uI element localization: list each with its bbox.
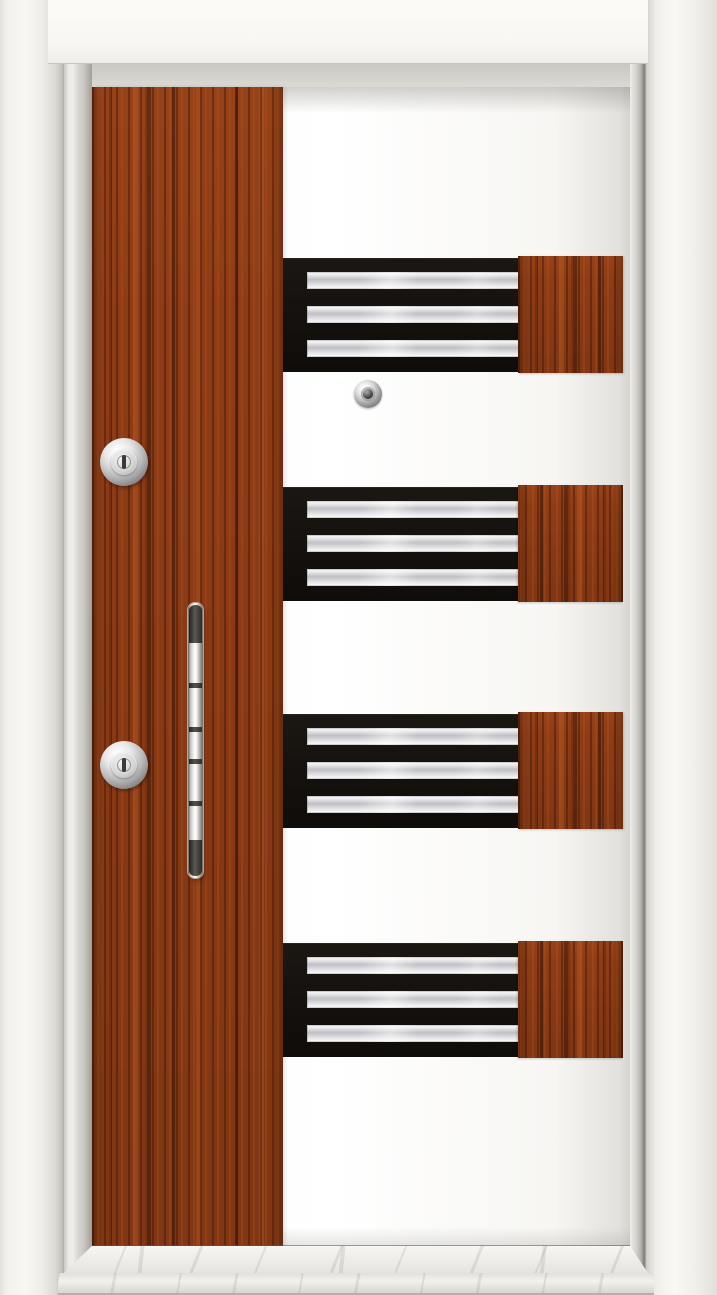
wood-accent-block (518, 485, 623, 602)
grille-black-base (283, 714, 520, 828)
steel-slat (307, 762, 519, 779)
frame-casing-right (644, 0, 717, 1295)
steel-slat (307, 796, 519, 813)
marble-threshold-face (58, 1273, 654, 1295)
keyhole-slot (122, 455, 126, 469)
grille-black-base (283, 943, 520, 1057)
frame-header (48, 0, 648, 64)
grille-black-base (283, 487, 520, 601)
steel-slat (307, 569, 519, 586)
handle-bottom-mount (189, 840, 202, 876)
grille-black-base (283, 258, 520, 372)
wood-accent-block (518, 256, 623, 373)
steel-slat (307, 501, 519, 518)
steel-slat (307, 340, 519, 357)
upper-lock-cylinder (100, 438, 148, 486)
lower-lock-cylinder (100, 741, 148, 789)
steel-slat (307, 957, 519, 974)
lock-cylinder-face (111, 752, 137, 778)
steel-slat (307, 535, 519, 552)
steel-slat (307, 1025, 519, 1042)
handle-band (189, 683, 202, 688)
handle-band (189, 801, 202, 806)
steel-slat (307, 991, 519, 1008)
wood-accent-block (518, 712, 623, 829)
steel-slat (307, 728, 519, 745)
handle-band (189, 759, 202, 764)
keyhole-slot (122, 758, 126, 772)
grille-panel-4 (283, 941, 623, 1058)
steel-slat (307, 306, 519, 323)
grille-panel-1 (283, 256, 623, 373)
frame-reveal-left (64, 63, 92, 1273)
frame-reveal-top (64, 63, 646, 88)
door-product-photo (0, 0, 717, 1295)
grille-panel-3 (283, 712, 623, 829)
peephole-lens (361, 387, 375, 401)
frame-reveal-right (630, 63, 646, 1273)
handle-band (189, 727, 202, 732)
steel-slat (307, 272, 519, 289)
door-pull-handle (188, 603, 203, 878)
grille-panel-2 (283, 485, 623, 602)
frame-casing-left (0, 0, 64, 1295)
handle-top-mount (189, 605, 202, 643)
peephole (354, 380, 382, 408)
door-leaf (92, 87, 630, 1247)
lock-cylinder-face (111, 449, 137, 475)
wood-accent-block (518, 941, 623, 1058)
marble-threshold-top (60, 1246, 652, 1273)
